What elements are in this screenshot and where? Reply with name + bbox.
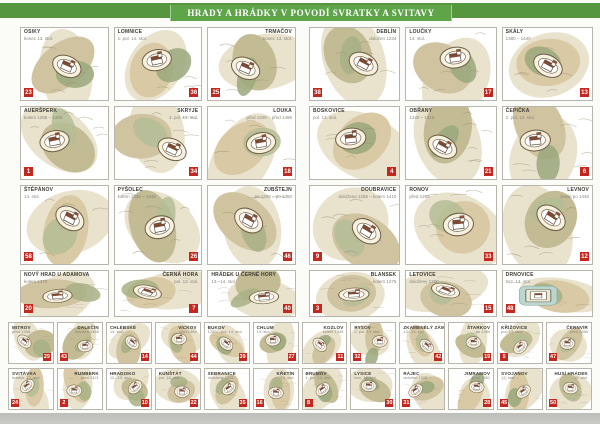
castle-cell: CHLUM13. stol.27 xyxy=(253,322,299,364)
castle-cell: BRUMOV1. pol. 14. stol.8 xyxy=(302,368,348,410)
castle-cell: KUNŠTÁTpol. 13. stol.22 xyxy=(155,368,201,410)
castle-cell: AUERŠPERKkolem 1285 – 14901 xyxy=(20,106,109,180)
castle-cell: ČERNÁ HORApol. 13. stol.7 xyxy=(114,270,203,317)
castle-number-badge: 18 xyxy=(283,167,292,176)
castle-cell: ŠTARKOVpo 138019 xyxy=(448,322,494,364)
castle-number-badge: 40 xyxy=(283,304,292,313)
castle-cell: TRMAČOVkonec 13. stol.25 xyxy=(207,27,296,101)
castle-cell: JIMRAMOVpřed 136128 xyxy=(448,368,494,410)
castle-number-badge: 50 xyxy=(549,399,557,407)
castle-number-badge: 19 xyxy=(483,353,491,361)
castle-cell: RYSOV2. pol. 13. stol.32 xyxy=(350,322,396,364)
castle-grid-left: OSIKYkonec 13. stol.23LOMNICE1. pol. 14.… xyxy=(20,27,296,317)
castle-number-badge: 1 xyxy=(24,167,33,176)
castle-cell: MITROVpřed 135829 xyxy=(8,322,54,364)
castle-cell: ČERNVÍRpřed 128547 xyxy=(546,322,592,364)
castle-number-badge: 45 xyxy=(500,399,508,407)
castle-cell: VÍCKOVpřed 136444 xyxy=(155,322,201,364)
castle-number-badge: 12 xyxy=(580,252,589,261)
castle-number-badge: 26 xyxy=(189,252,198,261)
castle-number-badge: 5 xyxy=(500,353,508,361)
castle-number-badge: 8 xyxy=(305,399,313,407)
castle-cell: BLANSEKkolem 12753 xyxy=(309,270,400,317)
poster-page: HRADY A HRÁDKY V POVODÍ SVRATKY A SVITAV… xyxy=(0,0,600,413)
castle-number-badge: 7 xyxy=(189,304,198,313)
castle-number-badge: 22 xyxy=(190,399,198,407)
small-castle-strip: MITROVpřed 135829DALEČÍNdoložen 135843CH… xyxy=(8,322,592,410)
castle-number-badge: 30 xyxy=(385,399,393,407)
castle-cell: HRADISKO12.–13. stol.10 xyxy=(106,368,152,410)
castle-cell: PYŠOLECkolem 1330 – 144626 xyxy=(114,185,203,265)
small-castle-row-1: MITROVpřed 135829DALEČÍNdoložen 135843CH… xyxy=(8,322,592,364)
castle-number-badge: 10 xyxy=(141,399,149,407)
castle-number-badge: 29 xyxy=(43,353,51,361)
castle-number-badge: 24 xyxy=(11,399,19,407)
castle-number-badge: 58 xyxy=(24,252,33,261)
castle-number-badge: 16 xyxy=(256,399,264,407)
castle-cell: BOSKOVICEpol. 13. stol.4 xyxy=(309,106,400,180)
castle-cell: CHLÉBSKÉ14. stol.14 xyxy=(106,322,152,364)
castle-cell: RÁJECdoložen 132531 xyxy=(399,368,445,410)
castle-cell: ŠTĚPÁNOV14. stol.58 xyxy=(20,185,109,265)
castle-cell: KOZLOVkolem 134911 xyxy=(302,322,348,364)
castle-cell: DOUBRAVICEdoložena 1255 – kolem 14109 xyxy=(309,185,400,265)
castle-number-badge: 42 xyxy=(434,353,442,361)
castle-cell: LYSICEtvrz, 14. stol.30 xyxy=(350,368,396,410)
title-banner: HRADY A HRÁDKY V POVODÍ SVRATKY A SVITAV… xyxy=(0,3,600,18)
castle-number-badge: 36 xyxy=(189,88,198,97)
poster-title: HRADY A HRÁDKY V POVODÍ SVRATKY A SVITAV… xyxy=(187,8,434,18)
castle-cell: SVITÁVKAhrádek, 13. stol.24 xyxy=(8,368,54,410)
castle-number-badge: 20 xyxy=(24,304,33,313)
castle-number-badge: 25 xyxy=(211,88,220,97)
castle-number-badge: 32 xyxy=(353,353,361,361)
castle-cell: LOUČKY14. stol.17 xyxy=(405,27,496,101)
castle-number-badge: 48 xyxy=(506,304,515,313)
castle-cell: OSIKYkonec 13. stol.23 xyxy=(20,27,109,101)
castle-number-badge: 14 xyxy=(141,353,149,361)
castle-number-badge: 34 xyxy=(189,167,198,176)
castle-number-badge: 43 xyxy=(60,353,68,361)
castle-number-badge: 11 xyxy=(336,353,344,361)
castle-cell: LEVNOVzanikl po 144612 xyxy=(502,185,593,265)
castle-number-badge: 35 xyxy=(239,399,247,407)
castle-cell: NOVÝ HRAD U ADAMOVAkolem 147020 xyxy=(20,270,109,317)
castle-number-badge: 38 xyxy=(313,88,322,97)
castle-number-badge: 28 xyxy=(483,399,491,407)
castle-cell: OBŘANY1240 – 131621 xyxy=(405,106,496,180)
title-banner-center: HRADY A HRÁDKY V POVODÍ SVRATKY A SVITAV… xyxy=(170,5,452,21)
castle-number-badge: 21 xyxy=(484,167,493,176)
castle-cell: KŘETÍN14. stol.16 xyxy=(253,368,299,410)
castle-cell: HUSÍ HRÁDEK15. stol.50 xyxy=(546,368,592,410)
castle-number-badge: 27 xyxy=(288,353,296,361)
castle-number-badge: 6 xyxy=(580,167,589,176)
castle-number-badge: 2 xyxy=(60,399,68,407)
castle-cell: ZKAMENĚLÝ ZÁMEK13.–14. stol.42 xyxy=(399,322,445,364)
castle-cell: SEBRANICEdoloženy 128135 xyxy=(204,368,250,410)
castle-cell: HRÁDEK U ČERNÉ HORY13.–14. stol.40 xyxy=(207,270,296,317)
castle-cell: ČEPIČKA2. pol. 13. stol.6 xyxy=(502,106,593,180)
castle-number-badge: 23 xyxy=(24,88,33,97)
castle-number-badge: 46 xyxy=(283,252,292,261)
castle-number-badge: 31 xyxy=(402,399,410,407)
castle-number-badge: 3 xyxy=(313,304,322,313)
castle-cell: LETOVICEdoloženy 125015 xyxy=(405,270,496,317)
castle-cell: RONOVpřed 128533 xyxy=(405,185,496,265)
castle-cell: LOMNICE1. pol. 14. stol.36 xyxy=(114,27,203,101)
castle-number-badge: 47 xyxy=(549,353,557,361)
small-castle-row-2: SVITÁVKAhrádek, 13. stol.24RUMBERKpřed 1… xyxy=(8,368,592,410)
castle-cell: DEBLÍNdoložen 123438 xyxy=(309,27,400,101)
castle-cell: SVOJANOV13. stol.45 xyxy=(497,368,543,410)
castle-number-badge: 15 xyxy=(484,304,493,313)
castle-number-badge: 13 xyxy=(580,88,589,97)
castle-cell: RUMBERKpřed 13212 xyxy=(57,368,103,410)
castle-cell: DRNOVICEtvrz, 14. stol.48 xyxy=(502,270,593,317)
castle-cell: SKÁLY1380 – 144013 xyxy=(502,27,593,101)
castle-number-badge: 4 xyxy=(387,167,396,176)
castle-number-badge: 9 xyxy=(313,252,322,261)
scan-edge-shadow xyxy=(0,413,600,424)
castle-number-badge: 33 xyxy=(484,252,493,261)
castle-cell: BUKOV1285 – pol. 14. stol.39 xyxy=(204,322,250,364)
castle-number-badge: 17 xyxy=(484,88,493,97)
castle-number-badge: 39 xyxy=(239,353,247,361)
castle-number-badge: 44 xyxy=(190,353,198,361)
castle-cell: LOUKApřed 1349 – před 149618 xyxy=(207,106,296,180)
castle-cell: SKRYJE2. pol. 14. stol.34 xyxy=(114,106,203,180)
castle-cell: ZUBŠTEJNpo 1208 – po 135046 xyxy=(207,185,296,265)
castle-cell: KŘÍŽOVICEpol. 13. stol.5 xyxy=(497,322,543,364)
castle-grid-right: DEBLÍNdoložen 123438LOUČKY14. stol.17SKÁ… xyxy=(309,27,593,317)
castle-cell: DALEČÍNdoložen 135843 xyxy=(57,322,103,364)
